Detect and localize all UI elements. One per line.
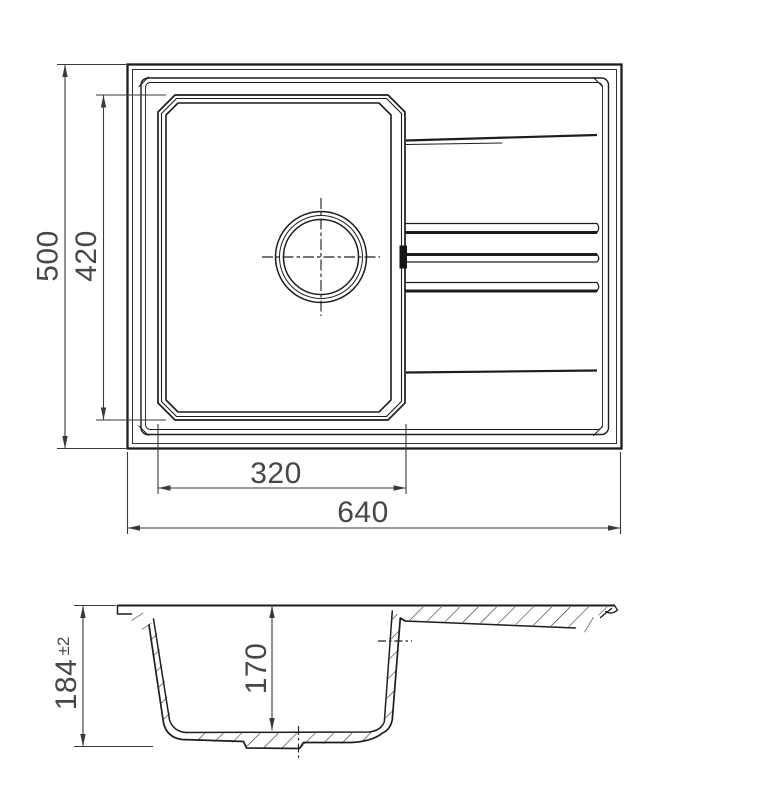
dim-overall-width-640: 640 (128, 452, 621, 534)
dim-bowl-inner-depth-170: 170 (240, 606, 275, 731)
dim-bowl-depth-420: 420 (70, 95, 166, 420)
dim-label-184: 184 (50, 659, 83, 711)
top-view (128, 65, 622, 449)
dim-label-500: 500 (32, 230, 65, 282)
drainer-grooves (400, 135, 599, 373)
top-view-dimensions: 500 420 320 640 (32, 65, 621, 535)
dim-label-320: 320 (250, 457, 302, 490)
section-view (118, 606, 618, 762)
dim-label-tolerance: ±2 (54, 637, 73, 656)
dim-label-420: 420 (70, 230, 103, 282)
dim-label-640: 640 (337, 496, 389, 529)
sink-technical-drawing: 500 420 320 640 (0, 0, 764, 800)
technical-drawing-page: 500 420 320 640 (0, 0, 764, 800)
section-bottom-hatch (186, 727, 387, 750)
overflow-channel (400, 246, 408, 269)
drain-hole (262, 198, 380, 316)
rim-corner-chamfers (139, 77, 603, 436)
rim-contour-outer (141, 78, 609, 435)
section-left-rim-step (118, 606, 132, 615)
dim-label-170: 170 (240, 643, 273, 695)
section-bowl-outer-profile (149, 618, 405, 749)
